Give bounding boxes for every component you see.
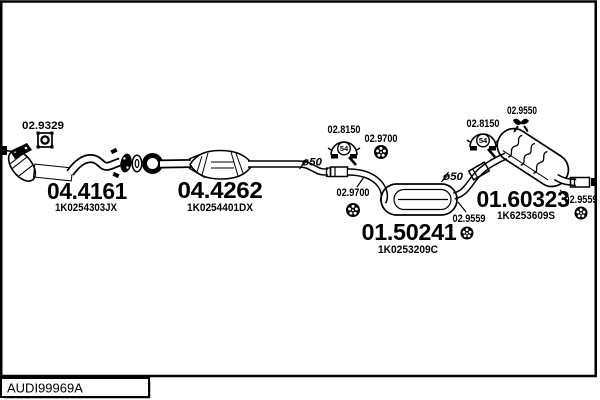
rubber-ring-icon xyxy=(374,145,388,159)
part-code-front-pipe: 04.4161 xyxy=(47,178,127,204)
label-pipe-diameter: ø50 xyxy=(443,171,464,183)
pipe-clamp-icon: 54 xyxy=(467,134,499,157)
pipe-clamp-icon: 54 xyxy=(328,142,360,165)
part-code-rear-muffler: 01.60323 xyxy=(477,186,570,212)
part-oem-catalyst: 1K0254401DX xyxy=(187,202,254,214)
label-mount-ring-code: 02.9700 xyxy=(337,187,370,199)
clamp-size-label: 54 xyxy=(479,136,488,145)
exhaust-system-diagram: 54 54 xyxy=(0,0,600,400)
catalyst-drawing xyxy=(189,151,253,180)
leader-line xyxy=(357,177,364,187)
footer-drawing-code: AUDI99969A xyxy=(7,381,83,396)
label-mount-ring-code: 02.9700 xyxy=(365,133,398,145)
centre-muffler-drawing xyxy=(381,184,457,215)
label-pipe-diameter: ø50 xyxy=(302,157,323,169)
rubber-ring-icon xyxy=(346,203,360,217)
label-clamp-code: 02.8150 xyxy=(328,124,361,136)
rubber-ring-icon xyxy=(461,227,474,240)
label-gasket-code: 02.9329 xyxy=(22,120,64,132)
rubber-ring-icon xyxy=(575,207,588,220)
exhaust-diagram-page: 54 54 xyxy=(0,0,600,400)
label-hanger-code: 02.9550 xyxy=(507,105,537,117)
pipe-sleeve-centre xyxy=(331,167,348,177)
leader-line xyxy=(458,202,466,212)
clamp-size-label: 54 xyxy=(340,144,349,153)
label-mount-ring-rear-code: 02.9559 xyxy=(453,213,486,225)
part-oem-rear-muffler: 1K6253609S xyxy=(497,210,555,222)
part-code-centre-muffler: 01.50241 xyxy=(362,219,458,245)
part-code-catalyst: 04.4262 xyxy=(178,177,263,203)
part-oem-front-pipe: 1K0254303JX xyxy=(55,202,118,214)
label-clamp-code: 02.8150 xyxy=(467,118,500,130)
part-oem-centre-muffler: 1K0253209C xyxy=(378,244,438,256)
square-gasket-icon xyxy=(37,132,54,149)
